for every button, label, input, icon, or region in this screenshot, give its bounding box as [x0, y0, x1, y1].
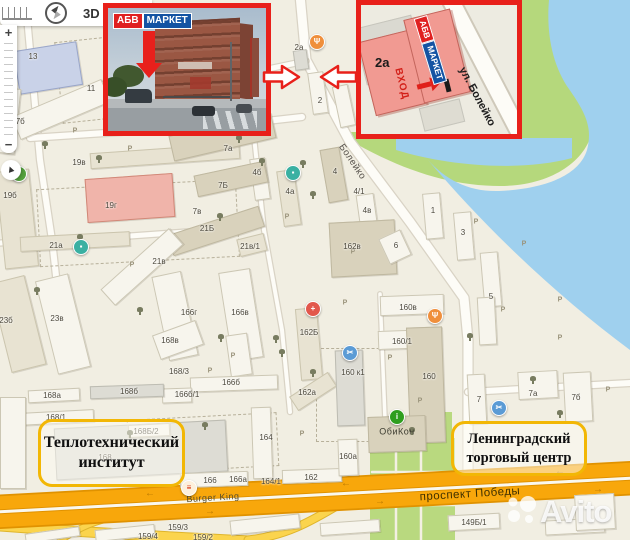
building-label: 5 [489, 293, 493, 301]
building-label: 166 [203, 477, 216, 485]
building [517, 370, 558, 400]
building-label: 160/1 [392, 338, 412, 346]
3d-mode-button[interactable]: 3D [83, 6, 100, 21]
building [0, 168, 39, 269]
callout-teplotech: Теплотехнический институт [38, 419, 185, 487]
building-label: 1 [431, 207, 435, 215]
poi-rest-icon[interactable]: Ψ [427, 308, 443, 324]
parking-label: Р [73, 128, 78, 135]
photo-sign-tower [250, 38, 259, 97]
tree-icon [136, 307, 144, 315]
photo-car [236, 104, 252, 113]
building-label: 7Б [218, 182, 228, 190]
ruler-icon[interactable] [2, 7, 32, 20]
tree-icon [33, 287, 41, 295]
tree-icon [201, 422, 209, 430]
callout-line: Ленинградский [468, 430, 571, 448]
tree-icon [41, 141, 49, 149]
building-label: 2 [318, 97, 322, 105]
poi-teal-icon[interactable]: ▪ [73, 239, 89, 255]
poi-blue-icon[interactable]: ✂ [491, 400, 507, 416]
plan-building-number: 2а [375, 55, 389, 70]
street-label: ОбиКон [379, 428, 414, 437]
compass-icon[interactable] [45, 2, 67, 24]
zoom-out-button[interactable]: − [5, 137, 13, 153]
parking-label: Р [388, 355, 393, 362]
building-label: 166б/1 [175, 391, 200, 399]
logo-abv: АБВ [113, 13, 143, 29]
tree-icon [217, 334, 225, 342]
tree-icon [299, 160, 307, 168]
building-label: 164 [259, 434, 272, 442]
building-label: 19б [3, 192, 16, 200]
building-label: 21а [49, 242, 62, 250]
building [320, 519, 381, 536]
building-label: 160в [399, 304, 417, 312]
building-label: 7б [571, 394, 580, 402]
building [477, 297, 497, 346]
parking-label: Р [418, 398, 423, 405]
building [251, 407, 274, 480]
building-label: 11 [87, 85, 95, 93]
poi-blue-icon[interactable]: ✂ [342, 345, 358, 361]
store-photo-inset: АБВ МАРКЕТ [103, 3, 271, 136]
building-label: 164/1 [261, 478, 281, 486]
lane-arrow-icon: ← [145, 489, 155, 499]
building-label: 168а [43, 392, 61, 400]
building-label: 160 [422, 373, 435, 381]
tree-icon [466, 333, 474, 341]
parking-label: Р [300, 431, 305, 438]
callout-line: институт [78, 453, 144, 473]
tree-icon [258, 158, 266, 166]
building-label: 166г [181, 309, 197, 317]
poi-info-icon[interactable]: i [389, 409, 405, 425]
abv-market-logo: АБВ МАРКЕТ [113, 13, 192, 29]
building-label: 23б [0, 317, 13, 325]
building-label: 7 [477, 396, 481, 404]
building [229, 513, 300, 535]
parking-label: Р [558, 335, 563, 342]
building [25, 526, 81, 540]
tree-icon [309, 191, 317, 199]
photo-pole [230, 42, 232, 101]
callout-line: Теплотехнический [44, 433, 179, 453]
building [85, 173, 176, 223]
parking-label: Р [208, 368, 213, 375]
avito-watermark: Avito [502, 492, 611, 530]
callout-line: торговый центр [467, 449, 572, 467]
photo-fence [163, 96, 229, 98]
building-label: 166в [231, 309, 249, 317]
building-label: 159/4 [138, 533, 158, 540]
tree-icon [272, 335, 280, 343]
zoom-control: + − [0, 25, 17, 153]
photo-banner [178, 62, 213, 69]
lane-arrow-icon: ← [341, 479, 351, 489]
building-label: 4 [333, 168, 337, 176]
tree-icon [235, 135, 243, 143]
red-down-arrow-icon [143, 31, 155, 63]
logo-market: МАРКЕТ [143, 13, 192, 29]
building-label: 7а [224, 145, 233, 153]
building-label: 166а [229, 476, 247, 484]
poi-rest-icon[interactable]: Ψ [309, 34, 325, 50]
building [422, 192, 444, 239]
building-label: 160а [339, 453, 357, 461]
poi-teal-icon[interactable]: ▪ [285, 165, 301, 181]
building-label: 162в [343, 243, 361, 251]
poi-bk-icon[interactable]: ≡ [181, 480, 197, 496]
lane-arrow-icon: → [205, 507, 215, 517]
building [335, 350, 366, 427]
building-label: 4/1 [353, 188, 364, 196]
tree-icon [309, 369, 317, 377]
map-viewport[interactable]: РРРРРРРРРРРРРРРРРР1131117б19в19б19г21а7а… [0, 0, 630, 540]
building-label: 162 [304, 474, 317, 482]
location-arrow-icon: ▲ [5, 164, 18, 177]
building-label: 7а [529, 390, 538, 398]
building-label: 168/3 [169, 368, 189, 376]
building-label: 168б [120, 388, 138, 396]
building-label: 21в/1 [240, 243, 260, 251]
parking-label: Р [343, 300, 348, 307]
building-label: 21Б [200, 225, 214, 233]
parking-label: Р [558, 297, 563, 304]
building-label: 159/2 [193, 534, 213, 540]
building-label: 162Б [300, 329, 319, 337]
photo-car [192, 106, 216, 116]
building-label: 3 [461, 229, 465, 237]
parking-label: Р [128, 146, 133, 153]
photo-bush [103, 77, 127, 97]
building-label: 13 [29, 53, 38, 61]
building [0, 397, 26, 489]
avito-logo-icon [502, 492, 540, 530]
building-label: 4в [363, 207, 372, 215]
parking-label: Р [606, 387, 611, 394]
lane-arrow-icon: → [375, 497, 385, 507]
building-label: 23в [50, 315, 63, 323]
tree-icon [529, 376, 537, 384]
avito-watermark-text: Avito [540, 496, 611, 527]
building-label: 166б [222, 379, 240, 387]
parking-label: Р [522, 241, 527, 248]
photo-red-sign [190, 77, 211, 89]
entrance-plan-inset: 2а АБВ МАРКЕТ ВХОД ул. Болейко [356, 0, 522, 139]
zoom-in-button[interactable]: + [5, 25, 13, 41]
building-label: 19г [105, 202, 117, 210]
callout-leningradsky: Ленинградский торговый центр [451, 421, 587, 476]
parking-label: Р [285, 214, 290, 221]
building-label: 149Б/1 [461, 519, 486, 527]
building-label: 168в [161, 337, 179, 345]
tree-icon [216, 213, 224, 221]
building-label: 162а [298, 389, 316, 397]
building-label: 19в [72, 159, 85, 167]
building [332, 84, 356, 128]
building-label: 21в [152, 258, 165, 266]
building [293, 49, 310, 71]
parking-label: Р [501, 307, 506, 314]
building-label: 2а [295, 44, 304, 52]
building-label: 4а [286, 188, 295, 196]
tree-icon [278, 349, 286, 357]
tree-icon [556, 410, 564, 418]
photo-car [125, 89, 152, 103]
building-label: 7в [193, 208, 202, 216]
building-label: 6 [394, 242, 398, 250]
building-label: 160 к1 [341, 369, 365, 377]
poi-med-icon[interactable]: + [305, 301, 321, 317]
locate-button[interactable]: ▲ [1, 160, 21, 180]
building-label: 159/3 [168, 524, 188, 532]
parking-label: Р [130, 262, 135, 269]
parking-label: Р [231, 353, 236, 360]
parking-label: Р [474, 219, 479, 226]
building [307, 71, 329, 115]
tree-icon [95, 155, 103, 163]
building-label: 4б [252, 169, 261, 177]
zoom-slider[interactable] [4, 43, 13, 135]
